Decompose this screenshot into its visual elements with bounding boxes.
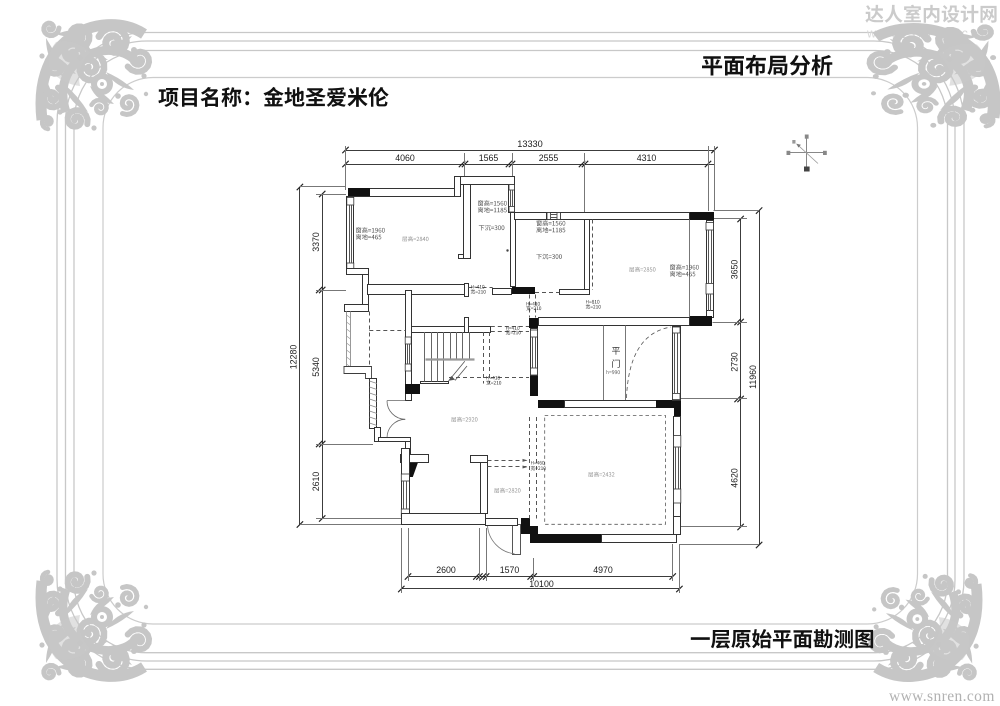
svg-text:5340: 5340: [311, 357, 321, 377]
svg-text:13330: 13330: [517, 139, 543, 149]
svg-text:4620: 4620: [730, 468, 740, 488]
svg-text:1565: 1565: [479, 153, 499, 163]
svg-text:1570: 1570: [500, 565, 520, 575]
svg-text:12280: 12280: [289, 345, 299, 370]
svg-text:4970: 4970: [593, 565, 613, 575]
svg-text:3650: 3650: [730, 260, 740, 280]
svg-text:2555: 2555: [539, 153, 559, 163]
svg-text:2610: 2610: [311, 472, 321, 492]
svg-text:3370: 3370: [311, 232, 321, 252]
svg-text:2600: 2600: [436, 565, 456, 575]
svg-text:2730: 2730: [730, 352, 740, 372]
svg-text:11960: 11960: [748, 365, 758, 389]
svg-text:www.snren.com: www.snren.com: [889, 688, 995, 705]
svg-text:10100: 10100: [529, 579, 554, 589]
svg-text:4060: 4060: [395, 153, 415, 163]
svg-text:4310: 4310: [637, 153, 657, 163]
